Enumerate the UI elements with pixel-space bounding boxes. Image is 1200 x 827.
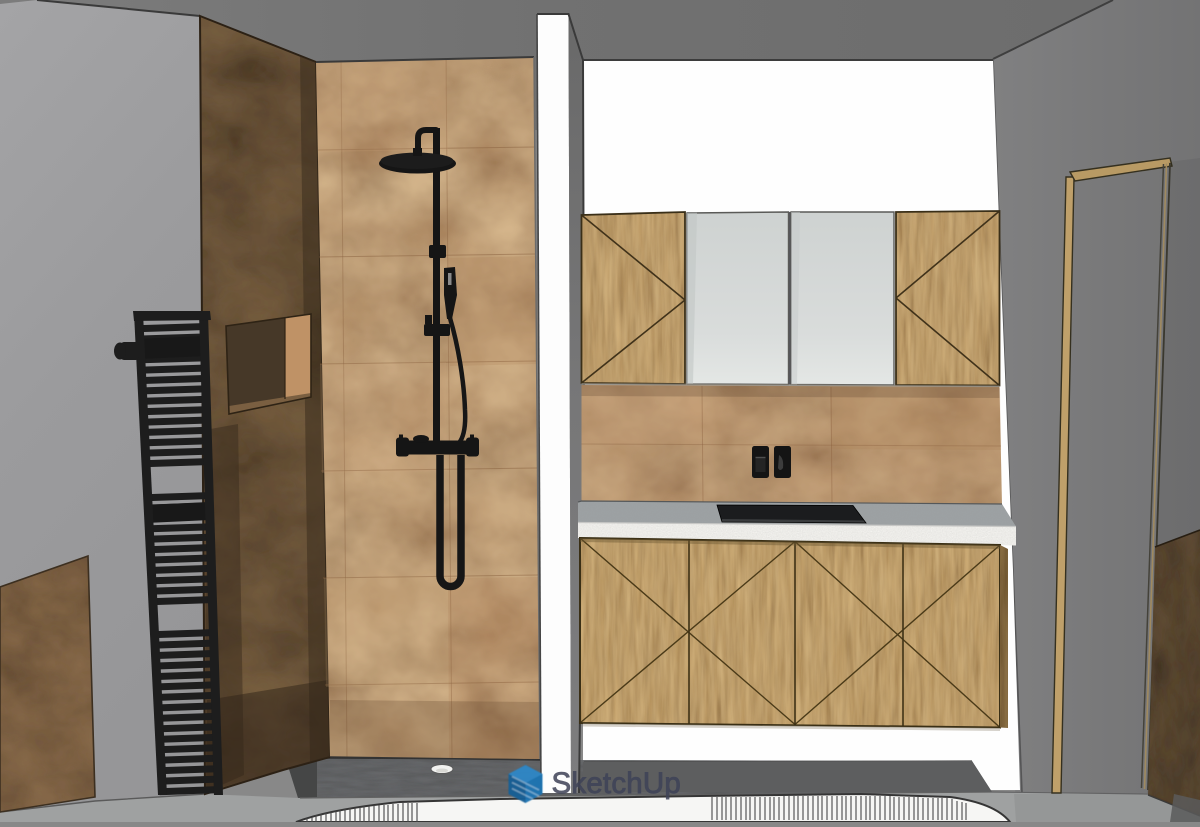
svg-text:SketchUp: SketchUp (552, 767, 682, 800)
